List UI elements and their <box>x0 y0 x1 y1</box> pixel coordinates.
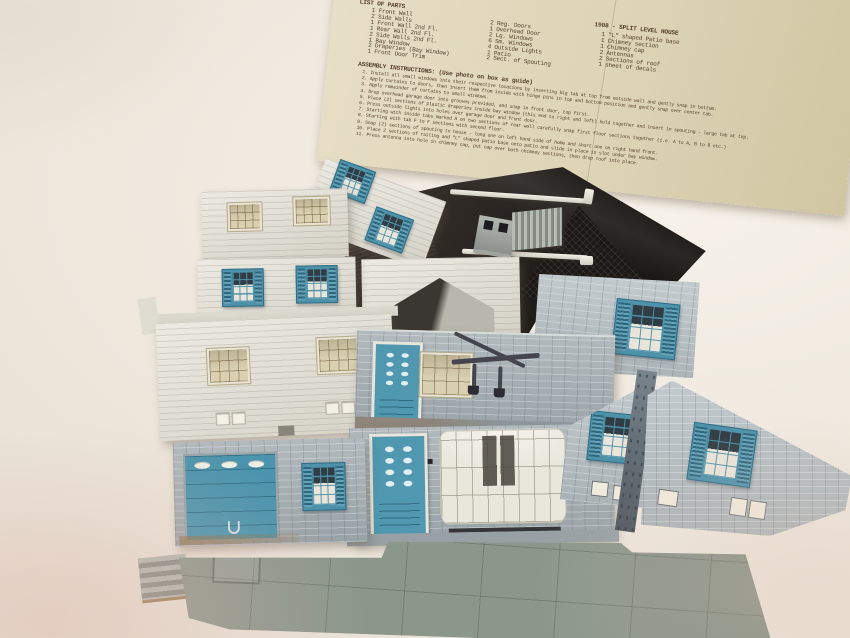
outside-light-stem <box>498 366 503 390</box>
outside-light-stem <box>472 364 477 388</box>
parts-column-2: 2 Reg. Doors1 Overhead Door2 Lg. Windows… <box>486 20 555 68</box>
clapboard-wall-tan-windows-top <box>201 188 349 260</box>
small-window-teal <box>301 462 346 511</box>
small-window-teal <box>296 265 339 304</box>
window-pane <box>628 305 665 352</box>
front-door-teal <box>369 433 429 540</box>
tab-hole <box>657 489 679 508</box>
window-pane <box>232 272 253 302</box>
large-window-teal-shuttered <box>686 422 757 488</box>
assembly-steps: 1. Install all small windows into their … <box>355 70 751 179</box>
garage-wall <box>173 438 368 547</box>
small-window-teal <box>222 268 265 307</box>
parts-column-1: 1 Front Wall2 Side Walls1 Front Wall 2nd… <box>367 8 453 64</box>
spouting-end-hook <box>580 256 593 265</box>
garage-door-handle <box>228 521 240 534</box>
outside-light-lamp <box>494 388 505 397</box>
tab-hole <box>215 412 230 426</box>
window-pane <box>375 213 403 246</box>
small-window-tan <box>227 202 262 231</box>
chimney-section <box>473 215 517 259</box>
chimney-flue-hole <box>483 220 493 230</box>
photo-model-kit-parts: LIST OF PARTS 1908 - SPLIT LEVEL HOUSE 1… <box>0 0 850 638</box>
small-window-tan <box>207 347 251 385</box>
overhead-garage-door <box>183 452 279 542</box>
large-window-teal-shuttered <box>611 298 681 360</box>
small-window-teal <box>364 206 414 254</box>
tab-hole <box>729 497 748 517</box>
chimney-flue-hole <box>498 223 508 233</box>
bay-window-white <box>439 429 567 525</box>
gable-end-wall-right <box>630 374 850 536</box>
tab-hole <box>748 500 767 520</box>
window-pane <box>312 467 335 505</box>
parts-column-3: 1 "L" shaped Patio base1 Chimney section… <box>598 32 679 75</box>
window-pane <box>306 269 327 299</box>
bay-window-dark-panes <box>482 435 515 486</box>
window-pane <box>703 429 741 479</box>
garage-door-window <box>221 461 237 469</box>
l-shaped-patio-base <box>176 528 775 638</box>
patio-raised-step <box>212 553 261 585</box>
small-window-tan <box>316 336 360 374</box>
tab-hole <box>325 401 340 415</box>
tab-hole <box>341 401 356 415</box>
chimney-cap-ribbed-part <box>512 207 562 250</box>
tab-hole <box>231 411 246 425</box>
bottom-notch <box>278 425 294 436</box>
outside-light-lamp <box>468 386 479 395</box>
gable-peaked-opening <box>388 277 495 337</box>
garage-door-window <box>194 461 210 469</box>
wall-base-smudge <box>179 533 299 545</box>
garage-door-window <box>248 460 264 468</box>
small-window-tan <box>293 197 330 226</box>
doorbell-hole <box>428 459 433 464</box>
tab-hole <box>591 481 609 498</box>
